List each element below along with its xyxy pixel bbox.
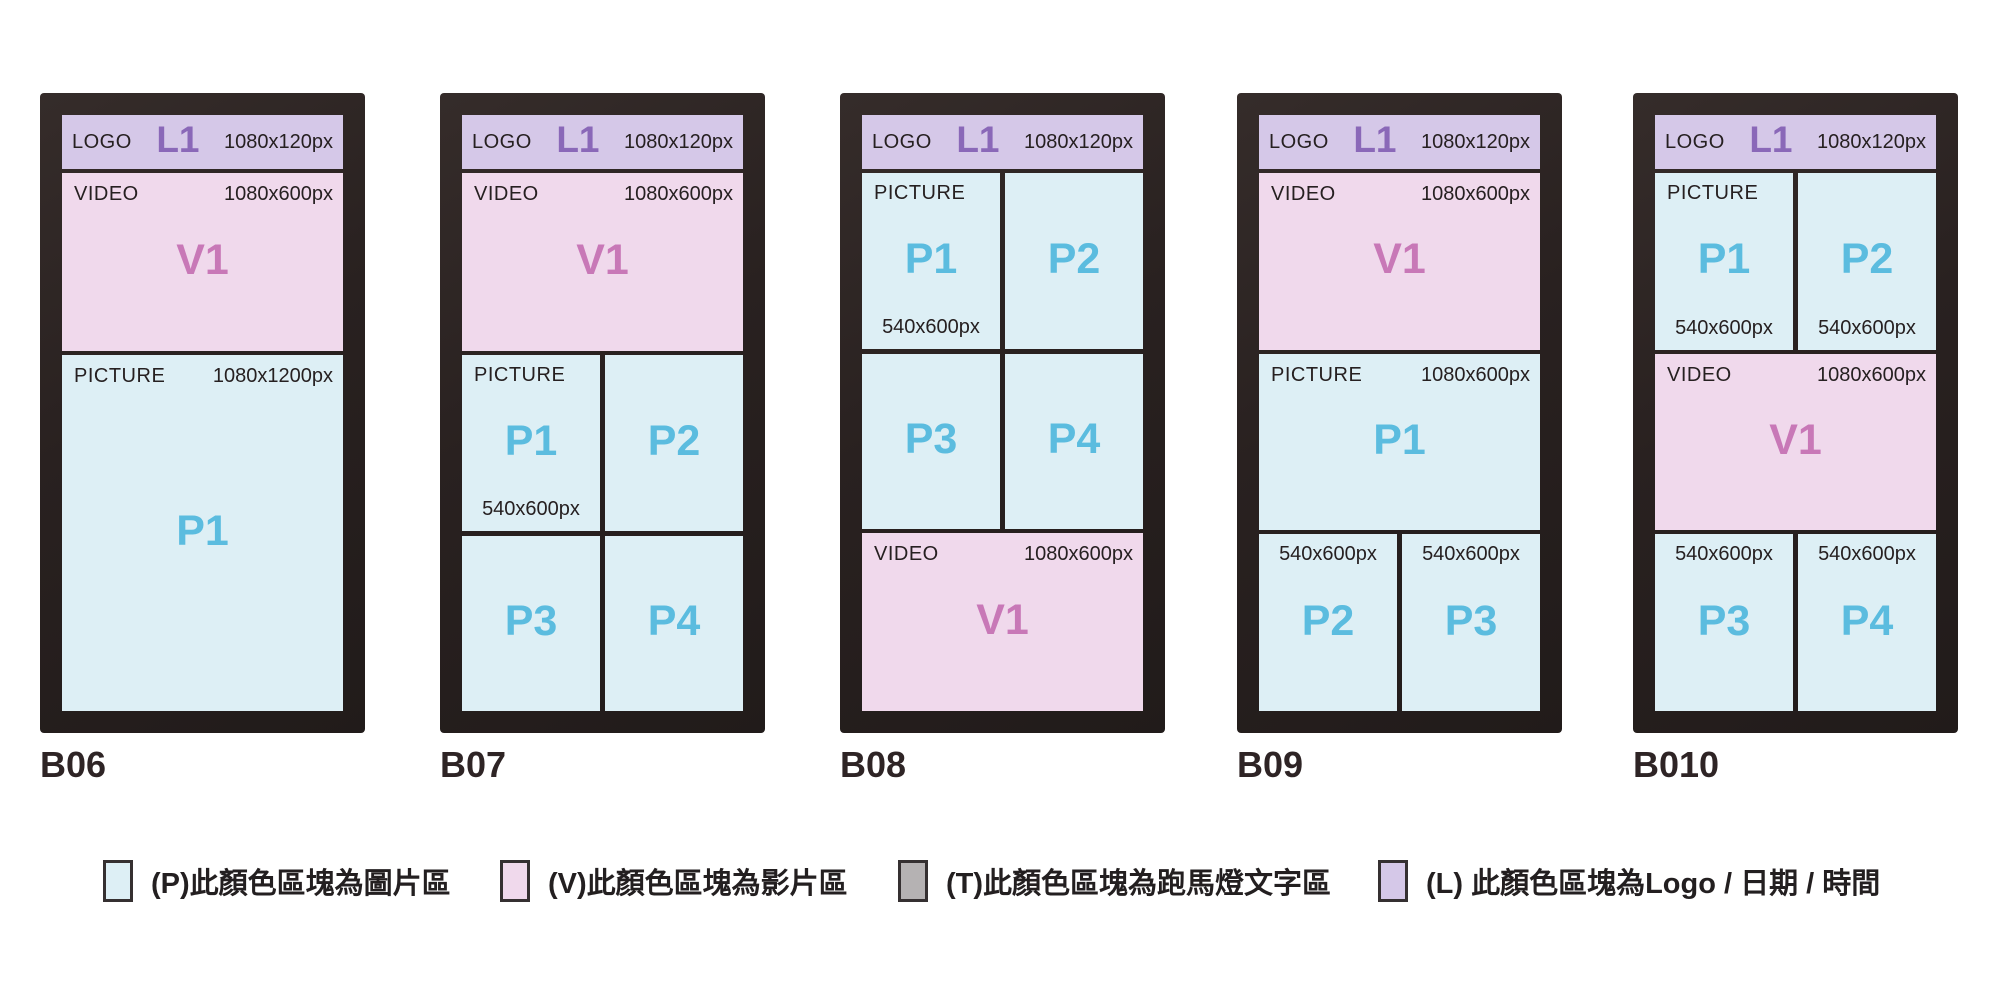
section-label: VIDEO <box>74 183 139 206</box>
logo-section: LOGO L1 1080x120px <box>462 115 743 169</box>
legend-label: (T)此顏色區塊為跑馬燈文字區 <box>946 860 1331 902</box>
panel-inner: LOGO L1 1080x120px PICTURE P1 540x600px … <box>862 115 1143 711</box>
section-head: VIDEO 1080x600px <box>1259 173 1540 206</box>
logo-section: LOGO L1 1080x120px <box>862 115 1143 169</box>
video-color-swatch <box>500 860 530 902</box>
legend-item-video: (V)此顏色區塊為影片區 <box>500 860 848 902</box>
picture-cell-p3: 540x600px P3 <box>1402 534 1540 711</box>
logo-code: L1 <box>1353 121 1396 158</box>
picture-cell-p4: P4 <box>605 536 743 712</box>
picture-code: P4 <box>1048 418 1101 461</box>
panel-inner: LOGO L1 1080x120px VIDEO 1080x600px V1 P… <box>1259 115 1540 711</box>
picture-code: P1 <box>176 510 229 553</box>
picture-code: P3 <box>1445 599 1498 642</box>
dimension-label: 1080x120px <box>1024 131 1133 154</box>
section-label: VIDEO <box>474 183 539 206</box>
panel-frame-b06: LOGO L1 1080x120px VIDEO 1080x600px V1 P… <box>40 93 365 733</box>
video-section: VIDEO 1080x600px V1 <box>1655 354 1936 531</box>
legend-label: (V)此顏色區塊為影片區 <box>548 860 848 902</box>
picture-cell-p2: P2 <box>1005 173 1143 349</box>
video-code: V1 <box>1769 419 1822 462</box>
dimension-label: 1080x1200px <box>213 365 333 388</box>
video-section: VIDEO 1080x600px V1 <box>62 173 343 351</box>
logo-section: LOGO L1 1080x120px <box>62 115 343 169</box>
panel-id-label: B08 <box>840 744 906 786</box>
picture-code: P2 <box>1302 599 1355 642</box>
dimension-label: 1080x120px <box>1817 131 1926 154</box>
picture-row: 540x600px P2 540x600px P3 <box>1259 534 1540 711</box>
picture-section: PICTURE 1080x600px P1 <box>1259 354 1540 531</box>
picture-row: 540x600px P3 540x600px P4 <box>1655 534 1936 711</box>
dimension-label: 1080x120px <box>224 131 333 154</box>
section-label: PICTURE <box>474 364 565 387</box>
video-code: V1 <box>176 239 229 282</box>
picture-cell-p4: P4 <box>1005 354 1143 530</box>
picture-grid: PICTURE P1 540x600px P2 P3 P4 <box>462 355 743 711</box>
section-label: LOGO <box>872 131 932 154</box>
logo-color-swatch <box>1378 860 1408 902</box>
video-code: V1 <box>976 599 1029 642</box>
picture-cell-p1: PICTURE P1 540x600px <box>1655 173 1793 350</box>
signage-layout-diagram: LOGO L1 1080x120px VIDEO 1080x600px V1 P… <box>0 0 2000 1000</box>
picture-code: P3 <box>1698 599 1751 642</box>
section-head: PICTURE 1080x1200px <box>62 355 343 388</box>
panel-frame-b08: LOGO L1 1080x120px PICTURE P1 540x600px … <box>840 93 1165 733</box>
picture-code: P1 <box>905 238 958 281</box>
picture-code: P4 <box>648 600 701 643</box>
picture-cell-p3: P3 <box>462 536 600 712</box>
video-section: VIDEO 1080x600px V1 <box>1259 173 1540 350</box>
picture-grid: PICTURE P1 540x600px P2 P3 P4 <box>862 173 1143 529</box>
picture-code: P3 <box>905 418 958 461</box>
section-label: PICTURE <box>874 182 965 205</box>
panel-id-label: B09 <box>1237 744 1303 786</box>
ticker-color-swatch <box>898 860 928 902</box>
panel-frame-b010: LOGO L1 1080x120px PICTURE P1 540x600px … <box>1633 93 1958 733</box>
dimension-label: 540x600px <box>1818 317 1916 340</box>
picture-code: P2 <box>648 420 701 463</box>
dimension-label: 540x600px <box>482 498 580 521</box>
dimension-label: 1080x600px <box>1024 543 1133 566</box>
section-label: PICTURE <box>1667 182 1758 205</box>
panel-inner: LOGO L1 1080x120px VIDEO 1080x600px V1 P… <box>62 115 343 711</box>
legend-label: (L) 此顏色區塊為Logo / 日期 / 時間 <box>1426 860 1880 902</box>
picture-row: PICTURE P1 540x600px P2 540x600px <box>1655 173 1936 350</box>
picture-cell-p1: PICTURE P1 540x600px <box>462 355 600 531</box>
section-label: VIDEO <box>874 543 939 566</box>
picture-cell-p2: P2 540x600px <box>1798 173 1936 350</box>
legend-item-logo: (L) 此顏色區塊為Logo / 日期 / 時間 <box>1378 860 1880 902</box>
panel-id-label: B07 <box>440 744 506 786</box>
section-label: PICTURE <box>74 365 165 388</box>
logo-section: LOGO L1 1080x120px <box>1259 115 1540 169</box>
panel-frame-b07: LOGO L1 1080x120px VIDEO 1080x600px V1 P… <box>440 93 765 733</box>
section-head: PICTURE 1080x600px <box>1259 354 1540 387</box>
picture-code: P2 <box>1841 238 1894 281</box>
legend-item-picture: (P)此顏色區塊為圖片區 <box>103 860 451 902</box>
section-label: PICTURE <box>1271 364 1362 387</box>
section-label: VIDEO <box>1667 364 1732 387</box>
section-label: LOGO <box>1665 131 1725 154</box>
picture-code: P4 <box>1841 599 1894 642</box>
logo-code: L1 <box>956 121 999 158</box>
dimension-label: 540x600px <box>1818 543 1916 566</box>
dimension-label: 540x600px <box>882 316 980 339</box>
picture-cell-p2: P2 <box>605 355 743 531</box>
video-code: V1 <box>1373 238 1426 281</box>
video-code: V1 <box>576 239 629 282</box>
section-label: LOGO <box>72 131 132 154</box>
section-head: VIDEO 1080x600px <box>62 173 343 206</box>
section-label: LOGO <box>472 131 532 154</box>
picture-cell-p4: 540x600px P4 <box>1798 534 1936 711</box>
logo-code: L1 <box>156 121 199 158</box>
panel-inner: LOGO L1 1080x120px VIDEO 1080x600px V1 P… <box>462 115 743 711</box>
picture-code: P2 <box>1048 238 1101 281</box>
section-head: VIDEO 1080x600px <box>462 173 743 206</box>
picture-code: P1 <box>505 420 558 463</box>
panel-inner: LOGO L1 1080x120px PICTURE P1 540x600px … <box>1655 115 1936 711</box>
dimension-label: 540x600px <box>1422 543 1520 566</box>
logo-section: LOGO L1 1080x120px <box>1655 115 1936 169</box>
legend-label: (P)此顏色區塊為圖片區 <box>151 860 451 902</box>
panel-id-label: B06 <box>40 744 106 786</box>
picture-section: PICTURE 1080x1200px P1 <box>62 355 343 711</box>
dimension-label: 1080x600px <box>1421 183 1530 206</box>
picture-code: P3 <box>505 600 558 643</box>
picture-cell-p3: P3 <box>862 354 1000 530</box>
logo-code: L1 <box>1749 121 1792 158</box>
section-label: LOGO <box>1269 131 1329 154</box>
video-section: VIDEO 1080x600px V1 <box>462 173 743 351</box>
dimension-label: 540x600px <box>1675 317 1773 340</box>
logo-code: L1 <box>556 121 599 158</box>
dimension-label: 1080x600px <box>1817 364 1926 387</box>
picture-cell-p1: PICTURE P1 540x600px <box>862 173 1000 349</box>
dimension-label: 1080x600px <box>1421 364 1530 387</box>
picture-code: P1 <box>1373 419 1426 462</box>
section-label: VIDEO <box>1271 183 1336 206</box>
dimension-label: 1080x120px <box>624 131 733 154</box>
picture-color-swatch <box>103 860 133 902</box>
video-section: VIDEO 1080x600px V1 <box>862 533 1143 711</box>
panel-frame-b09: LOGO L1 1080x120px VIDEO 1080x600px V1 P… <box>1237 93 1562 733</box>
section-head: VIDEO 1080x600px <box>1655 354 1936 387</box>
dimension-label: 1080x600px <box>624 183 733 206</box>
dimension-label: 540x600px <box>1279 543 1377 566</box>
picture-cell-p2: 540x600px P2 <box>1259 534 1397 711</box>
dimension-label: 1080x600px <box>224 183 333 206</box>
dimension-label: 540x600px <box>1675 543 1773 566</box>
section-head: VIDEO 1080x600px <box>862 533 1143 566</box>
legend-item-ticker: (T)此顏色區塊為跑馬燈文字區 <box>898 860 1331 902</box>
panel-id-label: B010 <box>1633 744 1719 786</box>
dimension-label: 1080x120px <box>1421 131 1530 154</box>
picture-cell-p3: 540x600px P3 <box>1655 534 1793 711</box>
picture-code: P1 <box>1698 238 1751 281</box>
